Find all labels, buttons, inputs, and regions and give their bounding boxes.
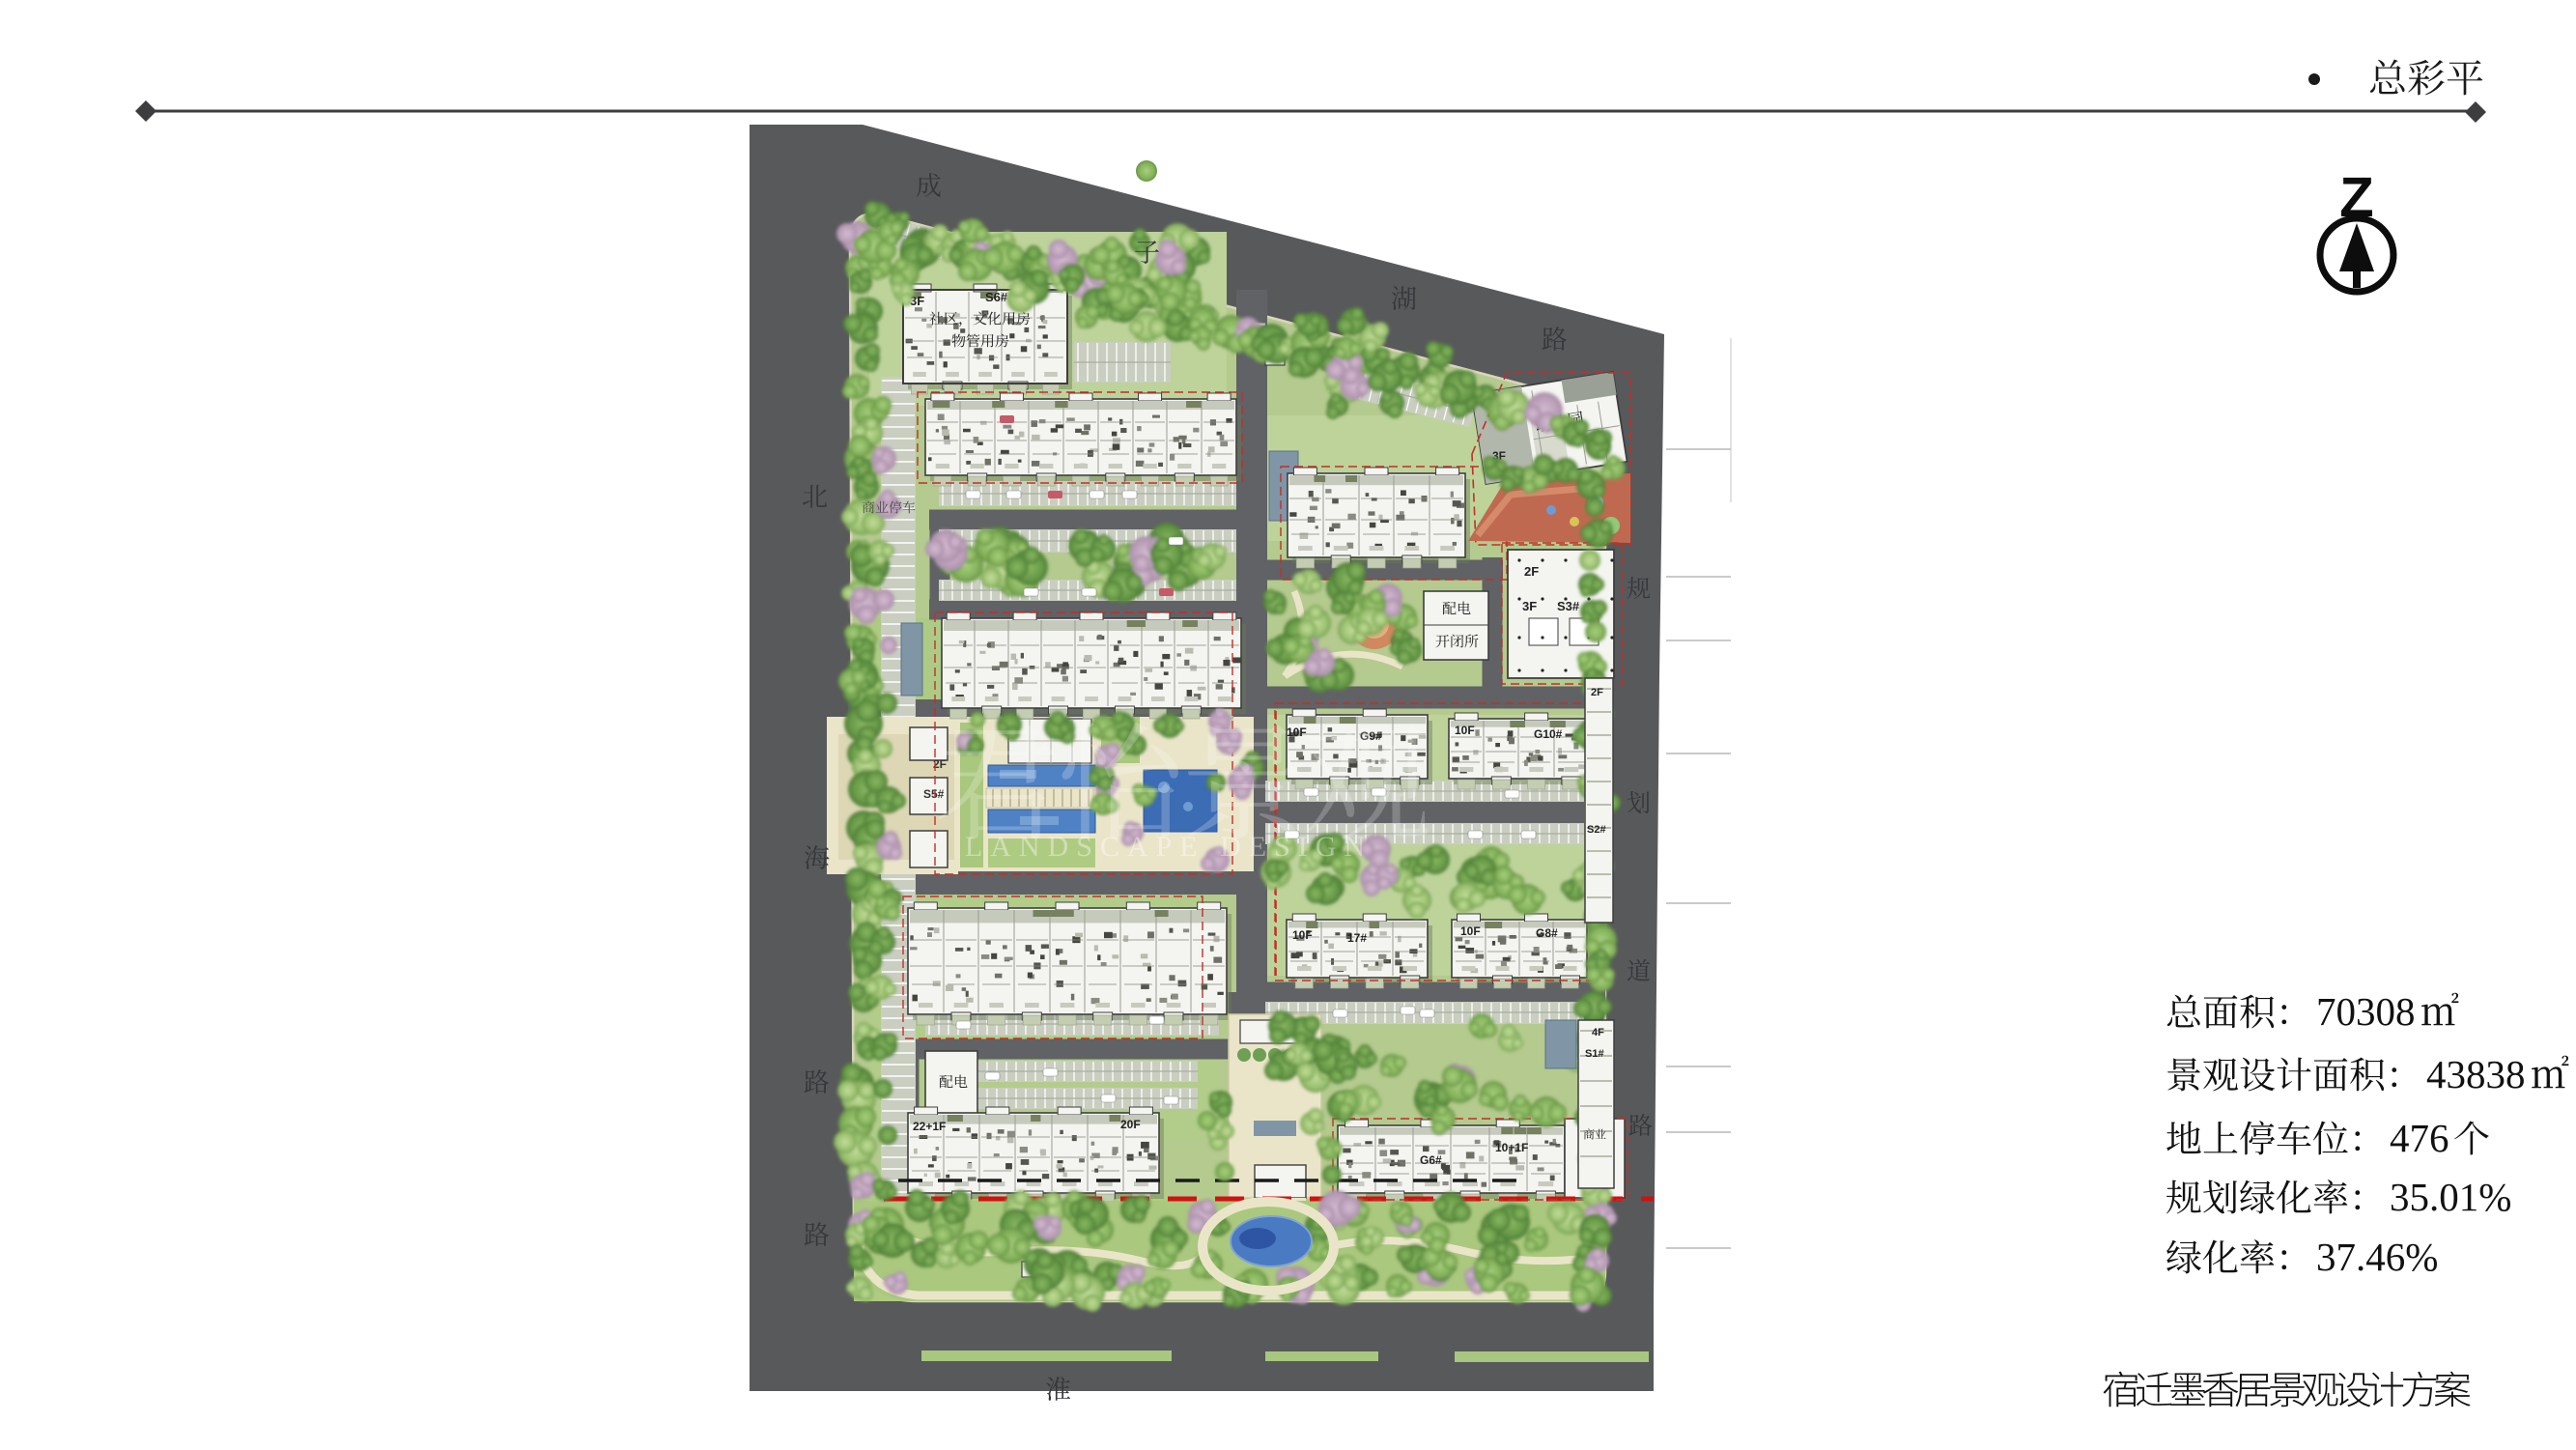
svg-text:2F: 2F — [1591, 687, 1603, 698]
svg-text:10F: 10F — [1292, 928, 1313, 942]
svg-text:10F: 10F — [1455, 724, 1475, 737]
svg-text:476: 476 — [2390, 1116, 2449, 1160]
svg-text:70308: 70308 — [2316, 989, 2416, 1034]
svg-text:S1#: S1# — [1585, 1048, 1604, 1060]
svg-text:G6#: G6# — [1420, 1153, 1442, 1167]
svg-text:37.46%: 37.46% — [2316, 1235, 2438, 1279]
svg-text:35.01%: 35.01% — [2390, 1175, 2511, 1219]
svg-text:LANDSCAPE DESIGN: LANDSCAPE DESIGN — [965, 831, 1373, 863]
svg-text:20F: 20F — [1120, 1118, 1141, 1131]
svg-text:10+1F: 10+1F — [1495, 1141, 1528, 1154]
svg-text:43838: 43838 — [2426, 1052, 2526, 1096]
svg-text:S6#: S6# — [985, 290, 1008, 304]
svg-text:22+1F: 22+1F — [913, 1120, 946, 1133]
svg-text:2F: 2F — [1524, 564, 1539, 579]
svg-text:S5#: S5# — [923, 787, 945, 801]
svg-text:G8#: G8# — [1536, 926, 1558, 940]
svg-text:10F: 10F — [1460, 924, 1481, 938]
svg-text:17#: 17# — [1347, 931, 1367, 945]
svg-text:3F: 3F — [1522, 599, 1537, 613]
svg-text:S3#: S3# — [1557, 599, 1580, 613]
svg-text:4F: 4F — [1592, 1027, 1604, 1038]
svg-text:S2#: S2# — [1587, 824, 1606, 836]
svg-text:G10#: G10# — [1534, 727, 1563, 741]
svg-text:10F: 10F — [1287, 725, 1307, 739]
